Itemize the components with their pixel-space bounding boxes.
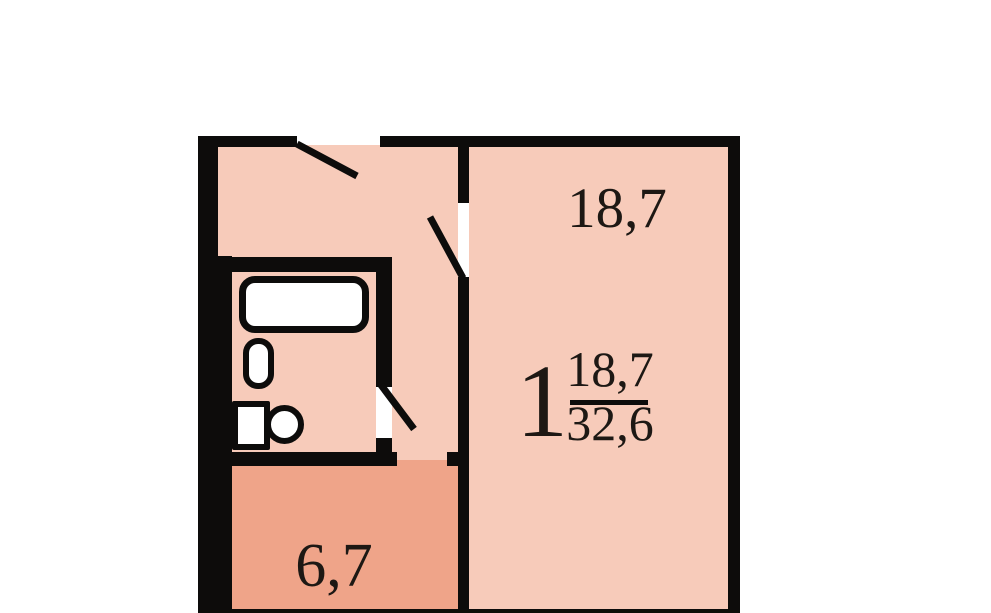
floor-plan: 18,7 1 18,7 32,6 6,7 [0, 0, 991, 613]
kitchen-area-label: 6,7 [274, 535, 394, 597]
living-area-numerator: 18,7 [560, 344, 660, 394]
total-area-denominator: 32,6 [560, 398, 660, 448]
entrance-door-swing [297, 144, 357, 176]
living-room-door-swing [430, 217, 463, 278]
bathroom-door-swing [381, 385, 414, 429]
door-swings [0, 0, 991, 613]
living-room-area-label: 18,7 [557, 180, 677, 237]
